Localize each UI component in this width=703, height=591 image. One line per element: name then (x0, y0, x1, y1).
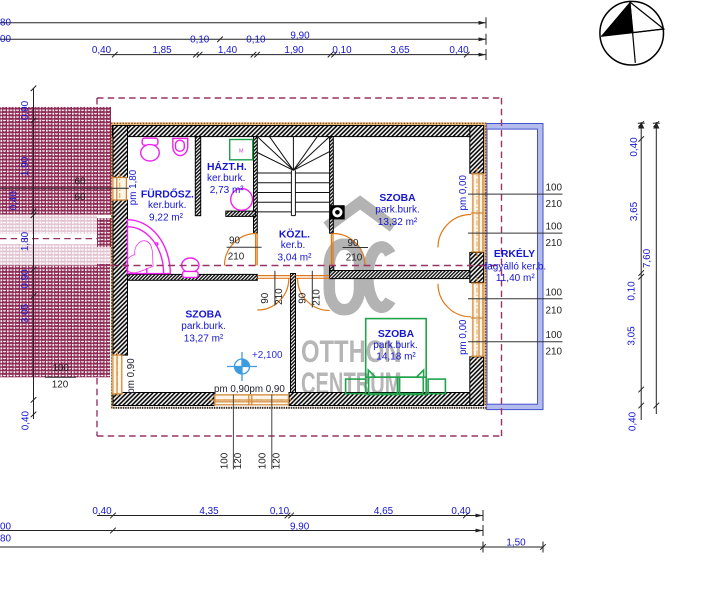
svg-text:4,65: 4,65 (374, 506, 394, 517)
svg-text:100: 100 (546, 183, 563, 194)
svg-text:pm 1,80: pm 1,80 (128, 169, 139, 205)
svg-text:120: 120 (52, 380, 69, 391)
svg-text:100: 100 (546, 222, 563, 233)
svg-text:210: 210 (546, 306, 563, 317)
svg-text:3,04 m²: 3,04 m² (278, 252, 313, 263)
svg-text:100: 100 (258, 452, 269, 469)
svg-text:1,50: 1,50 (506, 537, 526, 548)
svg-text:1,80: 1,80 (20, 231, 31, 251)
svg-text:100: 100 (546, 330, 563, 341)
svg-text:9,90: 9,90 (290, 31, 310, 42)
svg-text:SZOBA: SZOBA (378, 329, 415, 340)
svg-text:0,40: 0,40 (451, 506, 471, 517)
svg-text:SZOBA: SZOBA (379, 193, 416, 204)
svg-text:KÖZL.: KÖZL. (279, 227, 310, 240)
svg-text:210: 210 (546, 238, 563, 249)
svg-text:1,90: 1,90 (284, 45, 304, 56)
svg-text:0,40: 0,40 (8, 191, 19, 211)
svg-text:100: 100 (219, 452, 230, 469)
svg-text:3,65: 3,65 (390, 45, 410, 56)
svg-text:60: 60 (74, 192, 86, 203)
svg-text:pm 0,90pm 0,90: pm 0,90pm 0,90 (214, 384, 285, 395)
svg-text:00: 00 (0, 34, 11, 45)
svg-text:park.burk.: park.burk. (181, 321, 225, 332)
svg-text:100: 100 (546, 288, 563, 299)
svg-text:3,05: 3,05 (627, 326, 638, 346)
svg-text:ker.b.: ker.b. (281, 240, 305, 251)
svg-text:0,90: 0,90 (20, 269, 31, 289)
svg-text:2,73 m²: 2,73 m² (210, 185, 245, 196)
svg-text:90: 90 (229, 236, 240, 247)
svg-text:210: 210 (274, 288, 285, 305)
svg-text:park.burk.: park.burk. (373, 340, 417, 351)
svg-text:ker.burk.: ker.burk. (148, 200, 186, 211)
svg-text:1,85: 1,85 (152, 45, 172, 56)
svg-text:HÁZT.H.: HÁZT.H. (207, 160, 247, 173)
svg-text:0,10: 0,10 (190, 34, 210, 45)
svg-text:120: 120 (271, 452, 282, 469)
svg-text:80: 80 (0, 17, 11, 28)
svg-text:0,10: 0,10 (627, 281, 638, 301)
svg-text:13,27 m²: 13,27 m² (184, 333, 224, 344)
svg-text:+2,100: +2,100 (252, 350, 283, 361)
svg-text:00: 00 (0, 522, 11, 533)
svg-text:0,40: 0,40 (629, 137, 640, 157)
svg-text:ker.burk.: ker.burk. (207, 173, 245, 184)
svg-text:park.burk.: park.burk. (375, 205, 419, 216)
svg-text:210: 210 (228, 252, 245, 263)
svg-text:80: 80 (0, 534, 11, 545)
svg-text:1,90: 1,90 (20, 156, 31, 176)
svg-text:pm 0,90: pm 0,90 (126, 358, 137, 394)
svg-text:210: 210 (312, 289, 323, 306)
svg-text:0,10: 0,10 (270, 506, 290, 517)
svg-text:M: M (239, 149, 244, 155)
svg-text:4,35: 4,35 (199, 506, 219, 517)
svg-text:0,40: 0,40 (92, 45, 112, 56)
svg-text:14,18 m²: 14,18 m² (376, 352, 416, 363)
svg-text:1,40: 1,40 (218, 45, 238, 56)
svg-text:9,90: 9,90 (290, 522, 310, 533)
svg-text:pm 0,00: pm 0,00 (458, 319, 469, 355)
svg-text:0,90: 0,90 (20, 100, 31, 120)
svg-text:13,32 m²: 13,32 m² (378, 217, 418, 228)
svg-text:0,40: 0,40 (21, 410, 32, 430)
svg-text:0,40: 0,40 (449, 45, 469, 56)
svg-text:90: 90 (298, 292, 309, 303)
svg-text:100: 100 (52, 363, 69, 374)
svg-text:9,22 m²: 9,22 m² (149, 213, 184, 224)
svg-text:fagyálló ker.b.: fagyálló ker.b. (484, 262, 546, 273)
svg-text:7,60: 7,60 (642, 248, 653, 268)
svg-text:210: 210 (346, 252, 363, 263)
svg-text:0,10: 0,10 (246, 34, 266, 45)
svg-text:210: 210 (546, 199, 563, 210)
svg-text:0,40: 0,40 (628, 411, 639, 431)
svg-text:3,05: 3,05 (20, 303, 31, 323)
svg-text:FÜRDŐSZ.: FÜRDŐSZ. (141, 187, 194, 200)
svg-text:210: 210 (546, 347, 563, 358)
svg-text:pm 0,00: pm 0,00 (458, 175, 469, 211)
svg-text:0,10: 0,10 (332, 45, 352, 56)
svg-text:60: 60 (74, 177, 86, 188)
svg-text:SZOBA: SZOBA (185, 309, 222, 320)
svg-text:ERKÉLY: ERKÉLY (494, 247, 535, 260)
svg-text:90: 90 (260, 292, 271, 303)
svg-text:0,40: 0,40 (92, 506, 112, 517)
svg-text:120: 120 (233, 452, 244, 469)
svg-text:3,65: 3,65 (629, 201, 640, 221)
svg-text:11,40 m²: 11,40 m² (496, 273, 535, 284)
